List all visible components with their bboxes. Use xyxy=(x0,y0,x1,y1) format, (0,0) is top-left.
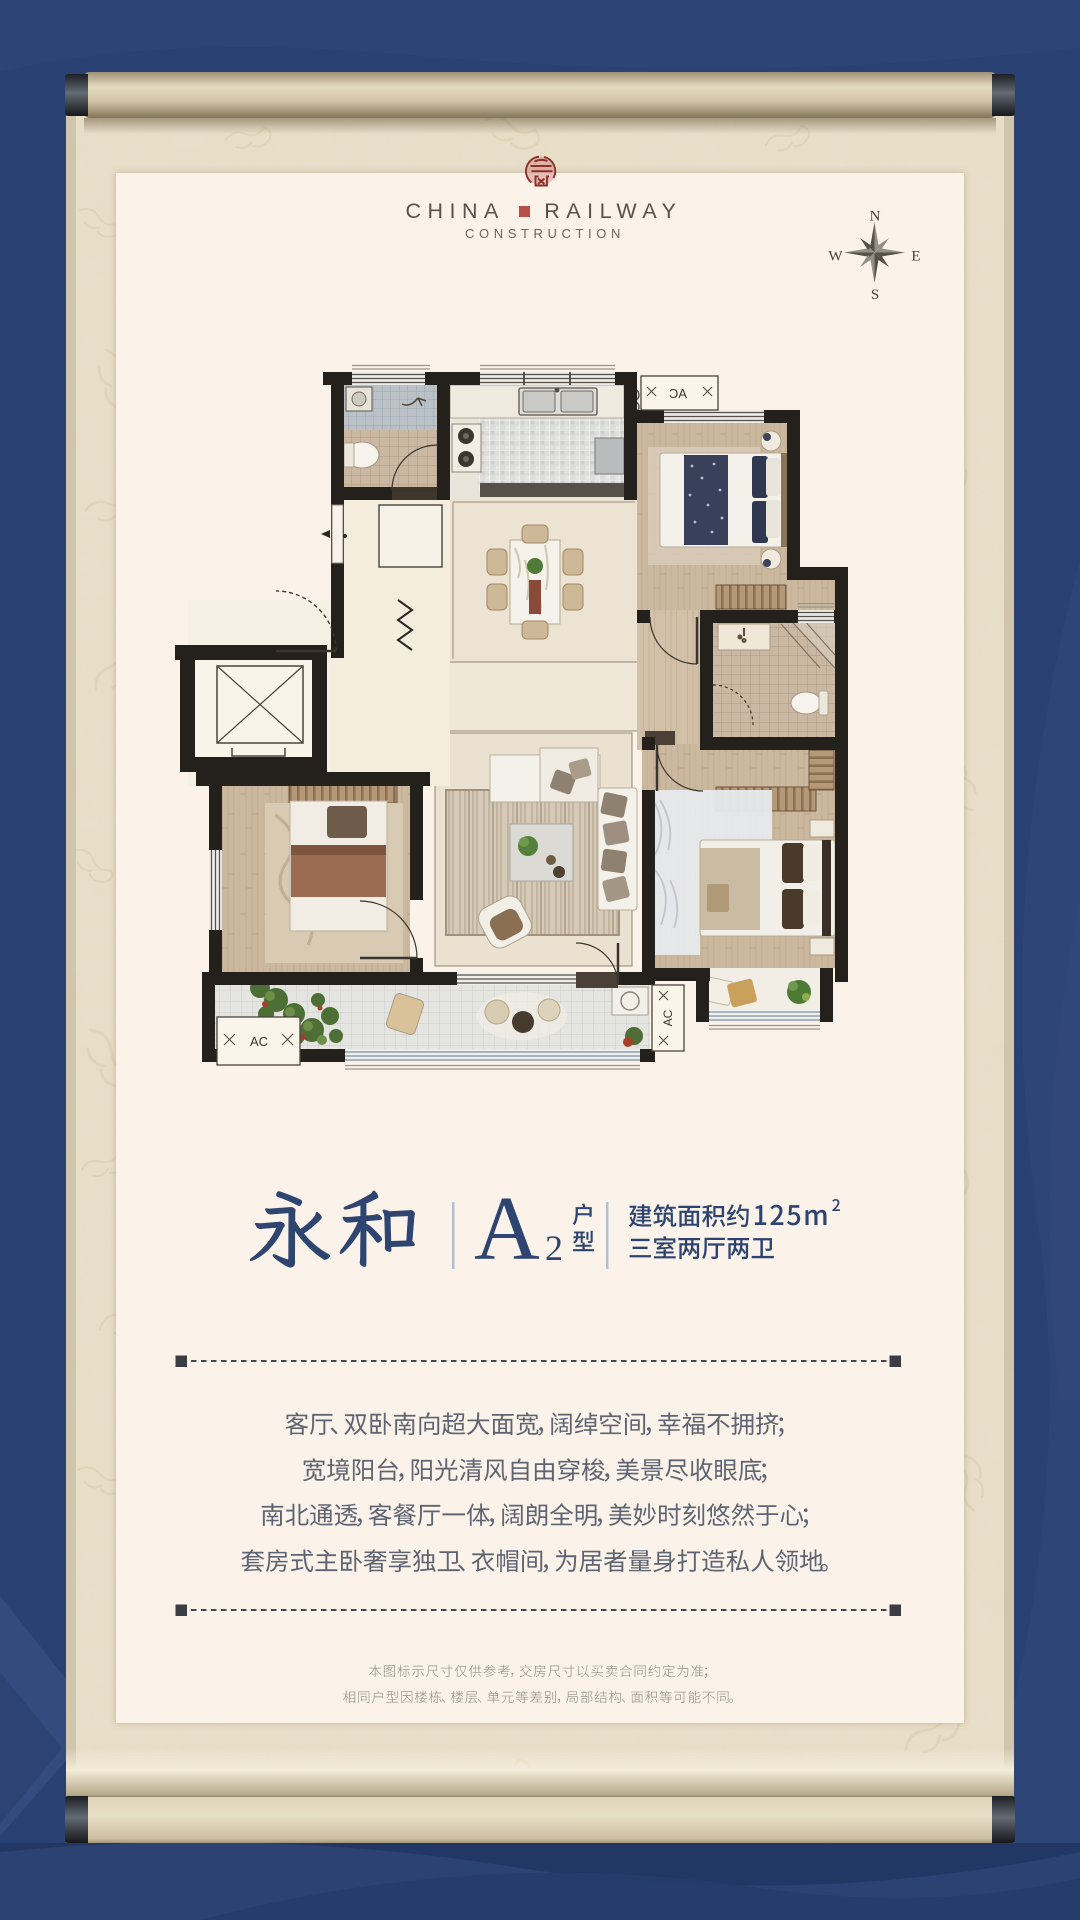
svg-text:2: 2 xyxy=(545,1228,563,1268)
svg-text:A: A xyxy=(474,1178,540,1279)
